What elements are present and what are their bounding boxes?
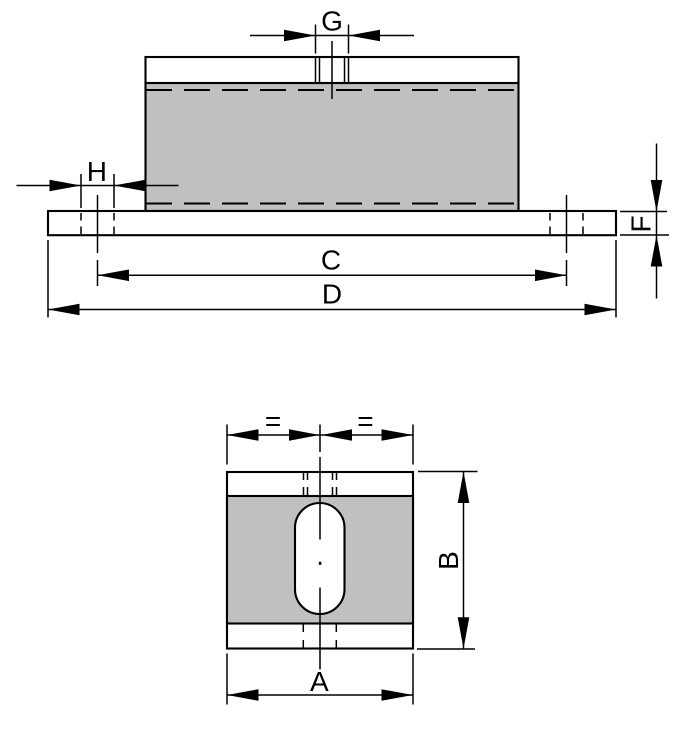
svg-text:=: = [265, 406, 281, 437]
svg-text:=: = [357, 406, 373, 437]
svg-text:A: A [310, 666, 329, 697]
svg-text:G: G [321, 6, 343, 37]
svg-text:B: B [433, 551, 464, 570]
svg-text:H: H [87, 156, 107, 187]
svg-text:F: F [626, 215, 657, 232]
svg-text:D: D [322, 279, 342, 310]
svg-text:C: C [321, 245, 341, 276]
